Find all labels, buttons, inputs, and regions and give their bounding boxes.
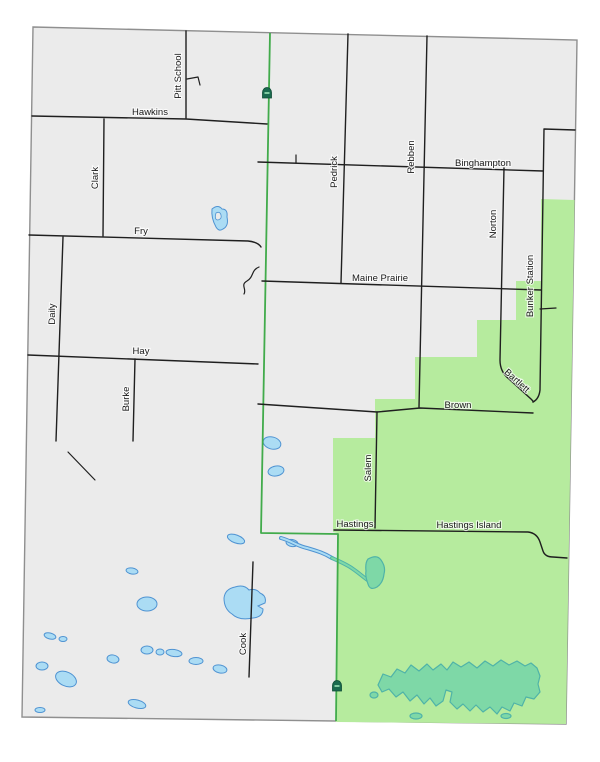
pond — [189, 658, 203, 665]
road-label-cook: Cook — [238, 633, 249, 655]
road-label-hawkins: Hawkins — [132, 107, 168, 118]
road-label-daily: Daily — [47, 303, 58, 324]
pond — [35, 708, 45, 713]
pond — [59, 637, 67, 642]
wetland-pond — [370, 692, 378, 698]
road-label-pedrick: Pedrick — [329, 156, 340, 188]
road-label-fry: Fry — [134, 226, 148, 237]
road-label-norton: Norton — [488, 210, 499, 239]
map-svg: Pitt School Hawkins Clark Fry Daily Hay … — [0, 0, 600, 762]
pond — [156, 649, 164, 655]
wetland-pond — [501, 714, 511, 719]
road-label-pitt-school: Pitt School — [173, 53, 184, 98]
pond — [141, 646, 153, 654]
road-label-hastings-island: Hastings Island — [437, 520, 502, 531]
pond — [36, 662, 48, 670]
landmark-dome-icon[interactable] — [263, 88, 272, 99]
road-label-brown: Brown — [445, 400, 472, 411]
road-label-salem: Salem — [363, 454, 374, 481]
road-label-hastings: Hastings — [337, 519, 374, 530]
pond — [215, 212, 221, 220]
road-label-bunker-station: Bunker Station — [525, 255, 536, 317]
wetland-pond — [410, 713, 422, 719]
road-label-rebben: Rebben — [406, 140, 417, 173]
road-label-maine-prairie: Maine Prairie — [352, 273, 408, 284]
road-label-clark: Clark — [90, 167, 101, 189]
road-label-burke: Burke — [121, 387, 132, 412]
landmark-dome-icon[interactable] — [333, 681, 342, 692]
road-clark — [103, 119, 104, 236]
road-label-hay: Hay — [133, 346, 150, 357]
road-label-binghampton: Binghampton — [455, 158, 511, 169]
pond — [137, 597, 157, 611]
map-canvas: Pitt School Hawkins Clark Fry Daily Hay … — [0, 0, 600, 762]
